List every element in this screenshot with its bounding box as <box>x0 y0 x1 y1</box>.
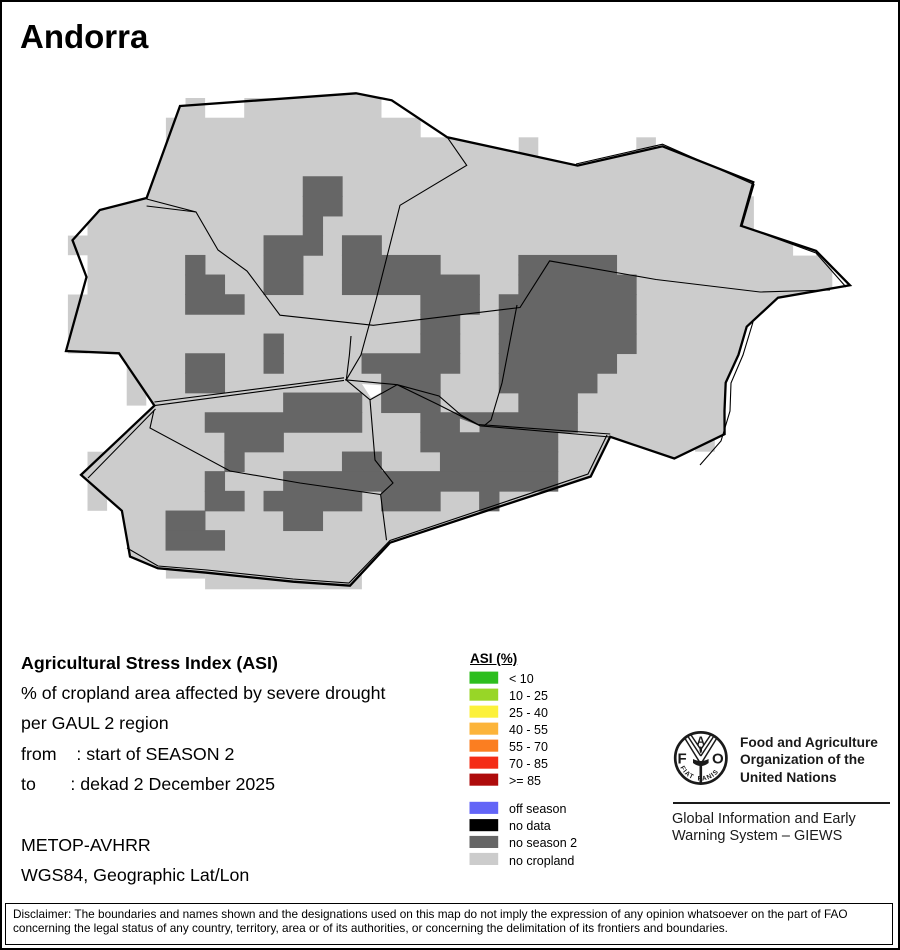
svg-text:A: A <box>697 736 705 748</box>
svg-text:F: F <box>678 751 687 768</box>
svg-text:O: O <box>712 751 724 768</box>
